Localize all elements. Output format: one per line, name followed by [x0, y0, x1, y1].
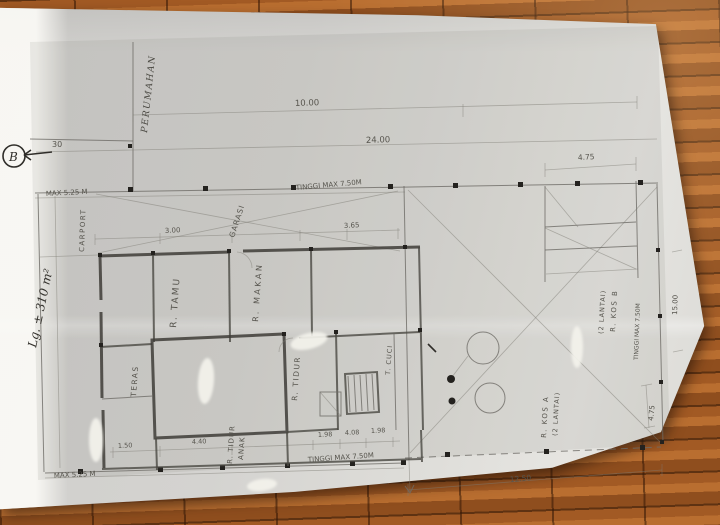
dim-4-75-top: 4.75: [578, 152, 595, 162]
label-r-tidur-anak-2: ANAK: [237, 436, 247, 460]
floor-plan-drawing: 10.00 24.00 4.75 MAX 5.25 M TINGGI MAX 7…: [0, 0, 720, 525]
small-dim-30: 30: [52, 140, 62, 149]
dim-3-65: 3.65: [344, 221, 360, 230]
dim-10-00: 10.00: [295, 98, 320, 109]
limit-rear-left: MAX 5.25 M: [54, 470, 96, 480]
dim-4-40: 4.40: [192, 437, 207, 446]
dim-3-00: 3.00: [165, 226, 181, 235]
dim-1-50: 1.50: [118, 441, 133, 450]
label-carport: CARPORT: [78, 208, 88, 252]
dim-1-98-a: 1.98: [318, 430, 333, 439]
dim-15-00: 15.00: [671, 295, 680, 315]
dim-4-08: 4.08: [345, 428, 360, 437]
dim-12-50: 12.50: [509, 473, 531, 484]
dim-24-00: 24.00: [366, 135, 391, 146]
dim-1-98-b: 1.98: [371, 426, 386, 435]
dim-4-75-right: 4.75: [647, 405, 657, 421]
section-marker-b: B: [8, 150, 18, 164]
